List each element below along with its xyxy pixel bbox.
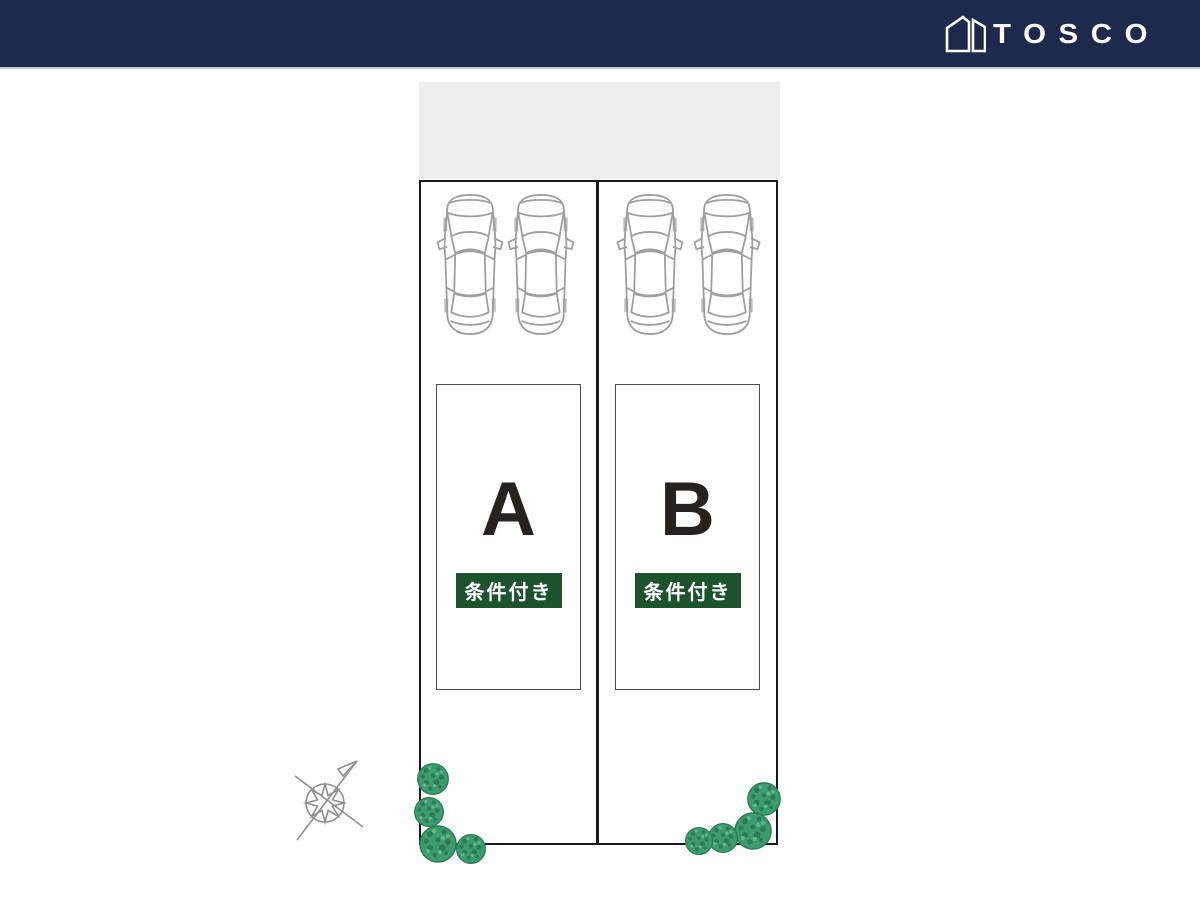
- lot-b-conditional-badge: 条件付き: [635, 573, 741, 608]
- road-area: [419, 82, 780, 179]
- brand-text: TOSCO: [993, 20, 1160, 48]
- header-bar: TOSCO: [0, 0, 1200, 69]
- lot-b-label: B: [616, 472, 759, 548]
- tosco-house-logo-icon: [942, 14, 986, 54]
- lot-a-conditional-badge: 条件付き: [456, 573, 562, 608]
- brand-logo[interactable]: TOSCO: [942, 0, 1160, 67]
- building-footprint-a: A 条件付き: [436, 384, 581, 690]
- building-footprint-b: B 条件付き: [615, 384, 760, 690]
- lot-a-label: A: [437, 472, 580, 548]
